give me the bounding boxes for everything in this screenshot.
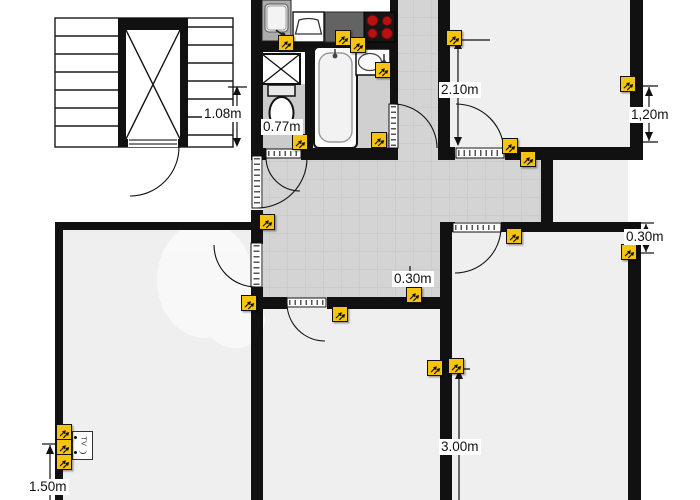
power-socket-marker	[520, 151, 536, 167]
power-socket-marker	[502, 138, 518, 154]
power-socket-marker	[427, 360, 443, 376]
elevator	[118, 18, 188, 147]
tv-socket-dots	[74, 436, 77, 454]
bathtub	[314, 47, 357, 148]
dim-label-top-right-room-side: 1,20m	[629, 107, 671, 123]
power-socket-marker	[371, 132, 387, 148]
dim-label-top-right-room: 2.10m	[439, 82, 481, 98]
power-socket-marker	[56, 439, 72, 455]
dim-label-corridor-offset: 0.30m	[392, 271, 434, 287]
tv-socket-curve	[79, 446, 87, 454]
dim-label-right-room-offset: 0.30m	[624, 229, 666, 245]
floor-plan-drawing	[0, 0, 700, 500]
power-socket-marker	[621, 244, 637, 260]
power-socket-marker	[259, 214, 275, 230]
power-socket-marker	[375, 62, 391, 78]
floor-plan: 1.08m 0.77m 2.10m 1,20m 0.30m 0.30m 3.00…	[0, 0, 700, 500]
stove	[364, 12, 395, 42]
power-socket-marker	[335, 30, 351, 46]
power-socket-marker	[56, 454, 72, 470]
power-socket-marker	[241, 295, 257, 311]
tv-antenna-socket-icon: TV	[72, 431, 93, 460]
tv-socket-label: TV	[79, 436, 86, 446]
dishwasher	[293, 12, 324, 42]
dim-label-bottom-left-wall: 1.50m	[27, 479, 69, 495]
power-socket-marker	[406, 287, 422, 303]
power-socket-marker	[448, 358, 464, 374]
dim-label-bottom-right-wall: 3.00m	[439, 439, 481, 455]
power-socket-marker	[332, 306, 348, 322]
power-socket-marker	[446, 30, 462, 46]
power-socket-marker	[278, 35, 294, 51]
shaft-crossed-square	[262, 54, 300, 84]
power-socket-marker	[506, 228, 522, 244]
dim-label-wc-width: 0.77m	[261, 119, 303, 135]
dim-label-stair-landing: 1.08m	[202, 106, 244, 122]
power-socket-marker	[350, 37, 366, 53]
power-socket-marker	[292, 134, 308, 150]
elevator-door	[130, 147, 179, 196]
power-socket-marker	[620, 76, 636, 92]
power-socket-marker	[56, 424, 72, 440]
